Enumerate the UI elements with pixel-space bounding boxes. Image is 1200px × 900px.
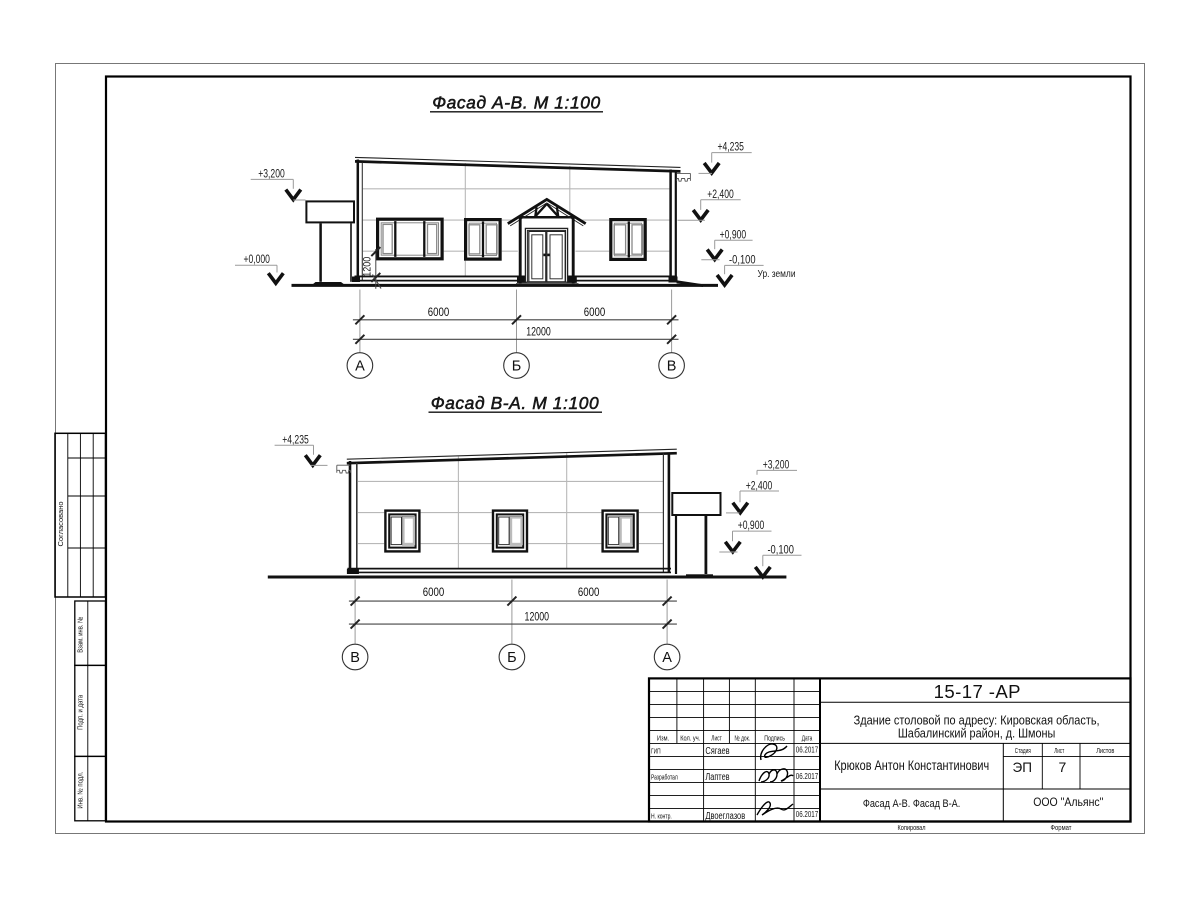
svg-text:6000: 6000 xyxy=(428,305,450,319)
svg-text:06.2017: 06.2017 xyxy=(796,771,819,781)
svg-text:Б: Б xyxy=(512,359,522,375)
svg-text:-0,100: -0,100 xyxy=(729,254,756,266)
svg-text:Кол. уч.: Кол. уч. xyxy=(680,734,700,743)
svg-text:12000: 12000 xyxy=(525,610,550,624)
svg-text:Ур. земли: Ур. земли xyxy=(758,268,796,280)
svg-text:Фасад А-В. М 1:100: Фасад А-В. М 1:100 xyxy=(432,93,601,113)
svg-text:Подпись: Подпись xyxy=(764,734,785,743)
svg-text:А: А xyxy=(355,359,365,375)
svg-text:+4,235: +4,235 xyxy=(717,142,744,154)
svg-text:Стадия: Стадия xyxy=(1015,746,1031,755)
svg-text:Разработал: Разработал xyxy=(651,773,678,782)
svg-text:+0,900: +0,900 xyxy=(738,520,765,532)
svg-text:Фасад В-А. М 1:100: Фасад В-А. М 1:100 xyxy=(431,393,600,413)
svg-text:+0,000: +0,000 xyxy=(243,254,270,266)
svg-text:6000: 6000 xyxy=(578,585,600,599)
svg-text:12000: 12000 xyxy=(526,325,551,339)
svg-text:Согласовано: Согласовано xyxy=(56,502,65,547)
svg-text:В: В xyxy=(350,650,360,666)
svg-text:Лаптев: Лаптев xyxy=(705,772,729,783)
svg-text:Лист: Лист xyxy=(1054,746,1064,755)
svg-text:В: В xyxy=(667,359,677,375)
svg-text:06.2017: 06.2017 xyxy=(796,745,819,755)
svg-text:Листов: Листов xyxy=(1096,746,1114,755)
svg-text:ГИП: ГИП xyxy=(651,747,661,756)
svg-text:06.2017: 06.2017 xyxy=(796,809,819,819)
svg-text:Изм.: Изм. xyxy=(657,734,669,743)
svg-text:Копировал: Копировал xyxy=(898,823,926,832)
svg-text:Б: Б xyxy=(507,650,517,666)
svg-text:Инв. № подл.: Инв. № подл. xyxy=(76,772,85,809)
svg-text:Лист: Лист xyxy=(711,734,722,743)
svg-text:ООО "Альянс": ООО "Альянс" xyxy=(1033,795,1103,809)
svg-text:№ док.: № док. xyxy=(735,734,751,743)
svg-text:+4,235: +4,235 xyxy=(282,434,309,446)
svg-text:Дата: Дата xyxy=(802,734,813,743)
svg-text:+3,200: +3,200 xyxy=(763,460,790,472)
svg-text:15-17 -АР: 15-17 -АР xyxy=(934,681,1021,702)
svg-text:Шабалинский район, д. Шмоны: Шабалинский район, д. Шмоны xyxy=(898,725,1056,740)
svg-text:Взам. инв. №: Взам. инв. № xyxy=(76,616,85,652)
svg-text:Подп. и дата: Подп. и дата xyxy=(76,695,85,730)
svg-text:Фасад А-В. Фасад В-А.: Фасад А-В. Фасад В-А. xyxy=(863,798,961,810)
svg-text:Формат: Формат xyxy=(1051,823,1072,832)
svg-text:7: 7 xyxy=(1059,759,1067,775)
svg-text:Двоеглазов: Двоеглазов xyxy=(705,811,745,822)
svg-text:6000: 6000 xyxy=(584,305,606,319)
svg-text:Крюков Антон Константинович: Крюков Антон Константинович xyxy=(834,758,989,773)
svg-text:Сягаев: Сягаев xyxy=(705,746,729,757)
svg-text:1200: 1200 xyxy=(362,257,374,277)
svg-text:А: А xyxy=(662,650,672,666)
svg-text:6000: 6000 xyxy=(423,585,445,599)
svg-text:ЭП: ЭП xyxy=(1012,759,1032,775)
svg-text:Н. контр.: Н. контр. xyxy=(651,812,672,821)
svg-text:+3,200: +3,200 xyxy=(258,168,285,180)
